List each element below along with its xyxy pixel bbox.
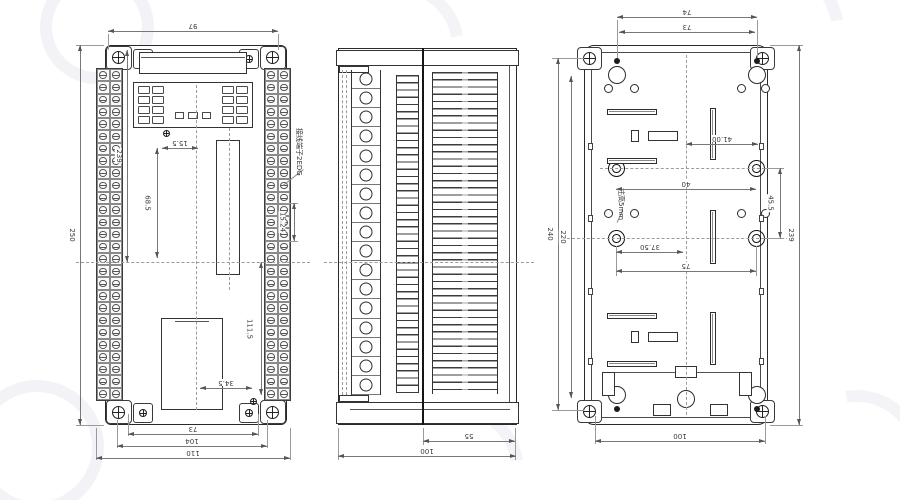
extension-line (765, 416, 766, 444)
wall-clip (759, 288, 764, 295)
wall-clip (588, 358, 593, 365)
dim-back-mid-b: 40 (616, 189, 756, 190)
center-slot (216, 140, 240, 275)
dim-front-terminal-pitch: 15.24 (294, 203, 295, 241)
wall-clip (759, 143, 764, 150)
bottom-notch (710, 404, 728, 416)
bottom-cutout-lip (175, 321, 209, 322)
wall-clip (588, 288, 593, 295)
dim-front-top-width: 97 (108, 31, 278, 32)
keyhole-screw-hole (614, 406, 620, 412)
wall-clip (759, 215, 764, 222)
corner-screw (112, 406, 125, 419)
hidden-edge (346, 70, 347, 395)
channel-foot (602, 372, 615, 396)
extension-line (258, 414, 259, 436)
dim-back-bottom-a: 100 (595, 441, 765, 442)
dim-back-mid-d: 75 (616, 271, 756, 272)
dim-front-bottom-b: 104 (117, 446, 267, 447)
keyhole-screw-hole (754, 58, 760, 64)
detail-screw (163, 130, 170, 137)
extension-line (267, 420, 268, 448)
dim-front-offset-a: 15.5 (162, 148, 198, 149)
led-cells-left (138, 86, 164, 124)
wall-clip (588, 143, 593, 150)
rib-slot (607, 109, 657, 115)
extension-line (284, 241, 298, 242)
rib-tab (648, 131, 678, 141)
detail-screw (250, 398, 257, 405)
inner-wall-line (509, 66, 510, 402)
corner-screw (583, 52, 596, 65)
extension-line (108, 34, 109, 50)
pilot-hole (630, 209, 639, 218)
vent-fins (432, 72, 498, 394)
dim-front-offset-b: 34.5 (200, 388, 252, 389)
rib-slot-vertical (710, 210, 716, 264)
dim-front-overall-height: 250 (80, 45, 81, 425)
watermark (0, 380, 104, 500)
rib-slot (607, 361, 657, 367)
dim-side-bottom-a: 55 (423, 441, 515, 442)
pilot-hole (604, 84, 613, 93)
bottom-notch (653, 404, 671, 416)
keyhole-screw-hole (614, 58, 620, 64)
keyhole-relief (748, 66, 766, 84)
terminal-profile-column (351, 70, 381, 395)
dim-back-mid-c: 37.50 (616, 252, 683, 253)
hidden-edge (342, 70, 343, 395)
centerline (324, 262, 534, 263)
drawing-sheet: 97 250 239 68.5 111.5 15.5 34.5 15.24 接线… (0, 0, 900, 500)
dim-front-height-b: 68.5 (157, 148, 158, 258)
dim-front-height-c: 111.5 (261, 262, 262, 395)
dim-back-right-b: 239 (799, 45, 800, 425)
rib-slot (607, 158, 657, 164)
dim-back-top-a: 74 (617, 17, 757, 18)
pilot-hole (737, 209, 746, 218)
centerline (600, 168, 770, 169)
small-screw (245, 409, 253, 417)
rib-tab (631, 331, 639, 343)
dim-back-left-b: 220 (571, 76, 572, 398)
corner-screw (112, 51, 125, 64)
extension-line (617, 20, 618, 58)
rib-slot-vertical (710, 108, 716, 160)
slot-column (396, 75, 419, 393)
rib-tab (648, 332, 678, 342)
dim-back-top-b: 73 (619, 32, 755, 33)
centerline (196, 85, 197, 410)
centerline (76, 262, 310, 263)
centerline (562, 238, 794, 239)
extension-line (290, 428, 291, 460)
button-cells (175, 112, 211, 119)
connector-lip-line (141, 57, 245, 58)
dim-front-bottom-a: 73 (128, 434, 258, 435)
side-top-cap (336, 50, 519, 66)
dim-side-bottom-b: 100 (338, 456, 516, 457)
extension-line (76, 425, 104, 426)
keyhole-relief (608, 66, 626, 84)
dim-front-bottom-c: 110 (96, 458, 290, 459)
top-connector-slot (139, 52, 247, 74)
dim-front-height-a: 239 (127, 50, 128, 262)
wall-clip (588, 215, 593, 222)
small-screw (139, 409, 147, 417)
extension-line (764, 238, 784, 239)
wall-clip (759, 358, 764, 365)
terminal-strip-right (264, 68, 291, 401)
side-bottom-cap (336, 402, 519, 424)
keyhole-screw-hole (754, 406, 760, 412)
side-bottom-step (339, 395, 369, 402)
dim-back-mid-a: 41.00 (686, 144, 758, 145)
pilot-hole (630, 84, 639, 93)
centerline (229, 128, 230, 290)
terminal-strip-left (96, 68, 123, 401)
centerline (686, 55, 687, 415)
rib-slot-vertical (710, 312, 716, 365)
extension-line (278, 34, 279, 50)
boss-note: 柱高5mm (617, 188, 624, 220)
extension-line (757, 20, 758, 58)
corner-screw (266, 51, 279, 64)
pilot-hole (604, 209, 613, 218)
extension-line (770, 425, 803, 426)
rib-tab (631, 130, 639, 142)
rib-slot (607, 313, 657, 319)
corner-screw (266, 406, 279, 419)
terminal-note: 接线端子2EDG (295, 128, 302, 176)
pilot-hole (761, 84, 770, 93)
led-cells-right (222, 86, 248, 124)
side-bottom-line (350, 409, 510, 410)
dim-back-right-a: 45.5 (780, 168, 781, 238)
extension-line (552, 410, 584, 411)
channel-foot (739, 372, 752, 396)
watermark (764, 364, 900, 500)
extension-line (756, 246, 757, 276)
housing-split-line (422, 48, 424, 425)
bottom-cutout (161, 318, 223, 410)
pilot-hole (737, 84, 746, 93)
